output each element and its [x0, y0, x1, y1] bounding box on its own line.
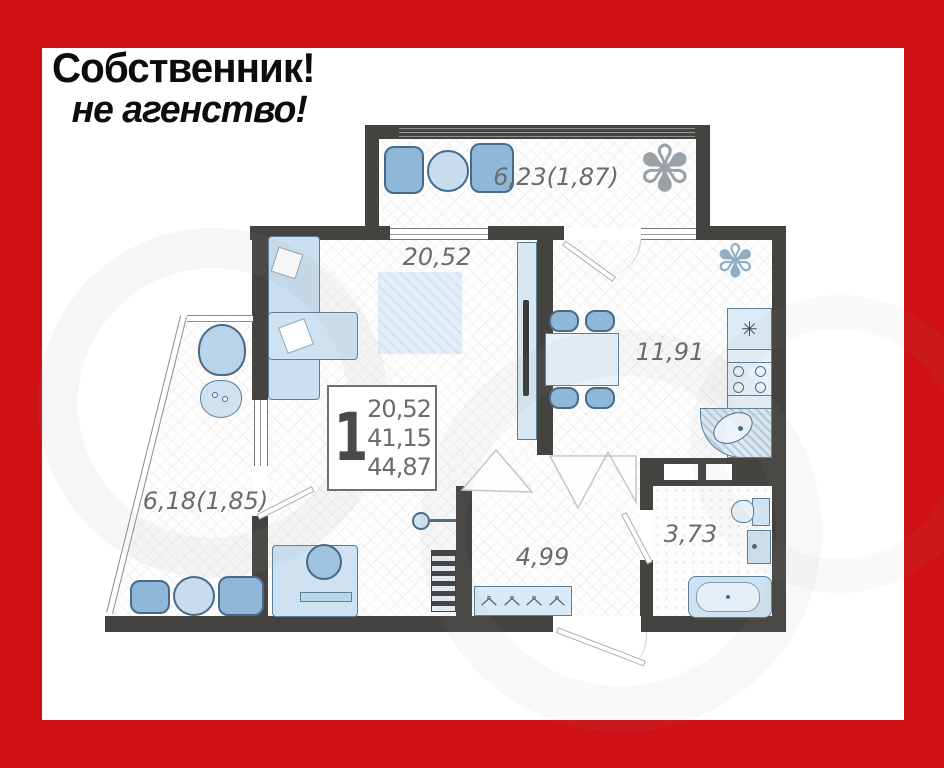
cup	[222, 396, 228, 402]
cup	[212, 392, 218, 398]
wall-right	[772, 226, 786, 632]
toilet-bowl	[731, 500, 754, 523]
balcony-left-area-label: 6,18(1,85)	[128, 487, 283, 515]
window-living-left-balcony	[254, 400, 268, 466]
living-area-value: 20,52	[367, 395, 431, 424]
wall-bottom-right	[641, 616, 786, 632]
window-kitchen-balcony	[641, 228, 696, 240]
stove	[727, 362, 772, 396]
hallway-area-label: 4,99	[505, 543, 580, 571]
total-area-value: 41,15	[367, 424, 431, 453]
toilet-tank	[752, 498, 770, 526]
balcony-round-table	[173, 576, 215, 616]
balcony-left-glazing-top	[187, 315, 253, 322]
dining-table	[545, 333, 619, 386]
sink-faucet	[738, 426, 743, 431]
plant-icon: ✾	[638, 138, 692, 202]
wall-living-left-upper	[252, 226, 268, 400]
dining-chair	[585, 387, 615, 409]
banner-line-2: не агенство!	[52, 90, 320, 130]
stove-burner	[755, 366, 766, 377]
plant-icon: ✾	[716, 238, 755, 284]
dining-chair	[549, 310, 579, 332]
snowflake-icon: ✳	[741, 317, 758, 341]
hanger-icon	[480, 594, 498, 608]
open-passage-zigzag	[458, 444, 644, 518]
stove-burner	[733, 366, 744, 377]
tv-icon	[523, 300, 529, 396]
vanity-knob	[752, 544, 757, 549]
apartment-summary-box: 1 20,52 41,15 44,87	[327, 385, 437, 491]
banner-line-1: Собственник!	[52, 46, 315, 90]
balcony-top-area-label: 6,23(1,87)	[466, 163, 646, 191]
wall-bottom-left	[105, 616, 553, 632]
bath-vanity	[747, 530, 771, 564]
dining-chair	[549, 387, 579, 409]
balcony-chair	[130, 580, 170, 614]
living-room-area-label: 20,52	[392, 243, 482, 271]
office-chair	[306, 544, 342, 580]
shoe-shelf	[431, 550, 456, 612]
dining-chair	[585, 310, 615, 332]
wardrobe	[474, 586, 572, 616]
balcony-round-table	[427, 150, 469, 192]
wall-lamp-icon	[412, 512, 430, 530]
fridge: ✳	[727, 308, 772, 350]
vent-shaft	[664, 464, 698, 480]
hanger-icon	[548, 594, 566, 608]
wall-balcony-right	[696, 125, 710, 232]
bathroom-area-label: 3,73	[658, 520, 723, 548]
full-area-value: 44,87	[367, 453, 431, 482]
wall-balcony-left	[365, 125, 379, 228]
listing-photo: { "banner": { "line1": "Собственник!", "…	[0, 0, 944, 768]
stove-burner	[755, 382, 766, 393]
owner-banner: Собственник! не агенство!	[52, 46, 326, 130]
bathtub-drain	[726, 595, 730, 599]
balcony-chair	[384, 146, 424, 194]
stove-burner	[733, 382, 744, 393]
balcony-chair	[218, 576, 264, 616]
kitchen-area-label: 11,91	[625, 338, 715, 366]
window-living-balcony	[390, 228, 488, 240]
rug	[378, 272, 462, 354]
hanger-icon	[525, 594, 543, 608]
room-count: 1	[334, 390, 363, 486]
hanger-icon	[503, 594, 521, 608]
balcony-side-table	[200, 380, 242, 418]
wall-bathroom-left-lower	[640, 560, 653, 616]
wall-lamp-arm	[430, 519, 456, 522]
vent-shaft	[706, 464, 732, 480]
balcony-armchair	[198, 324, 246, 376]
wall-bathroom-top-vent	[653, 458, 772, 486]
desk-shelf	[300, 592, 352, 602]
